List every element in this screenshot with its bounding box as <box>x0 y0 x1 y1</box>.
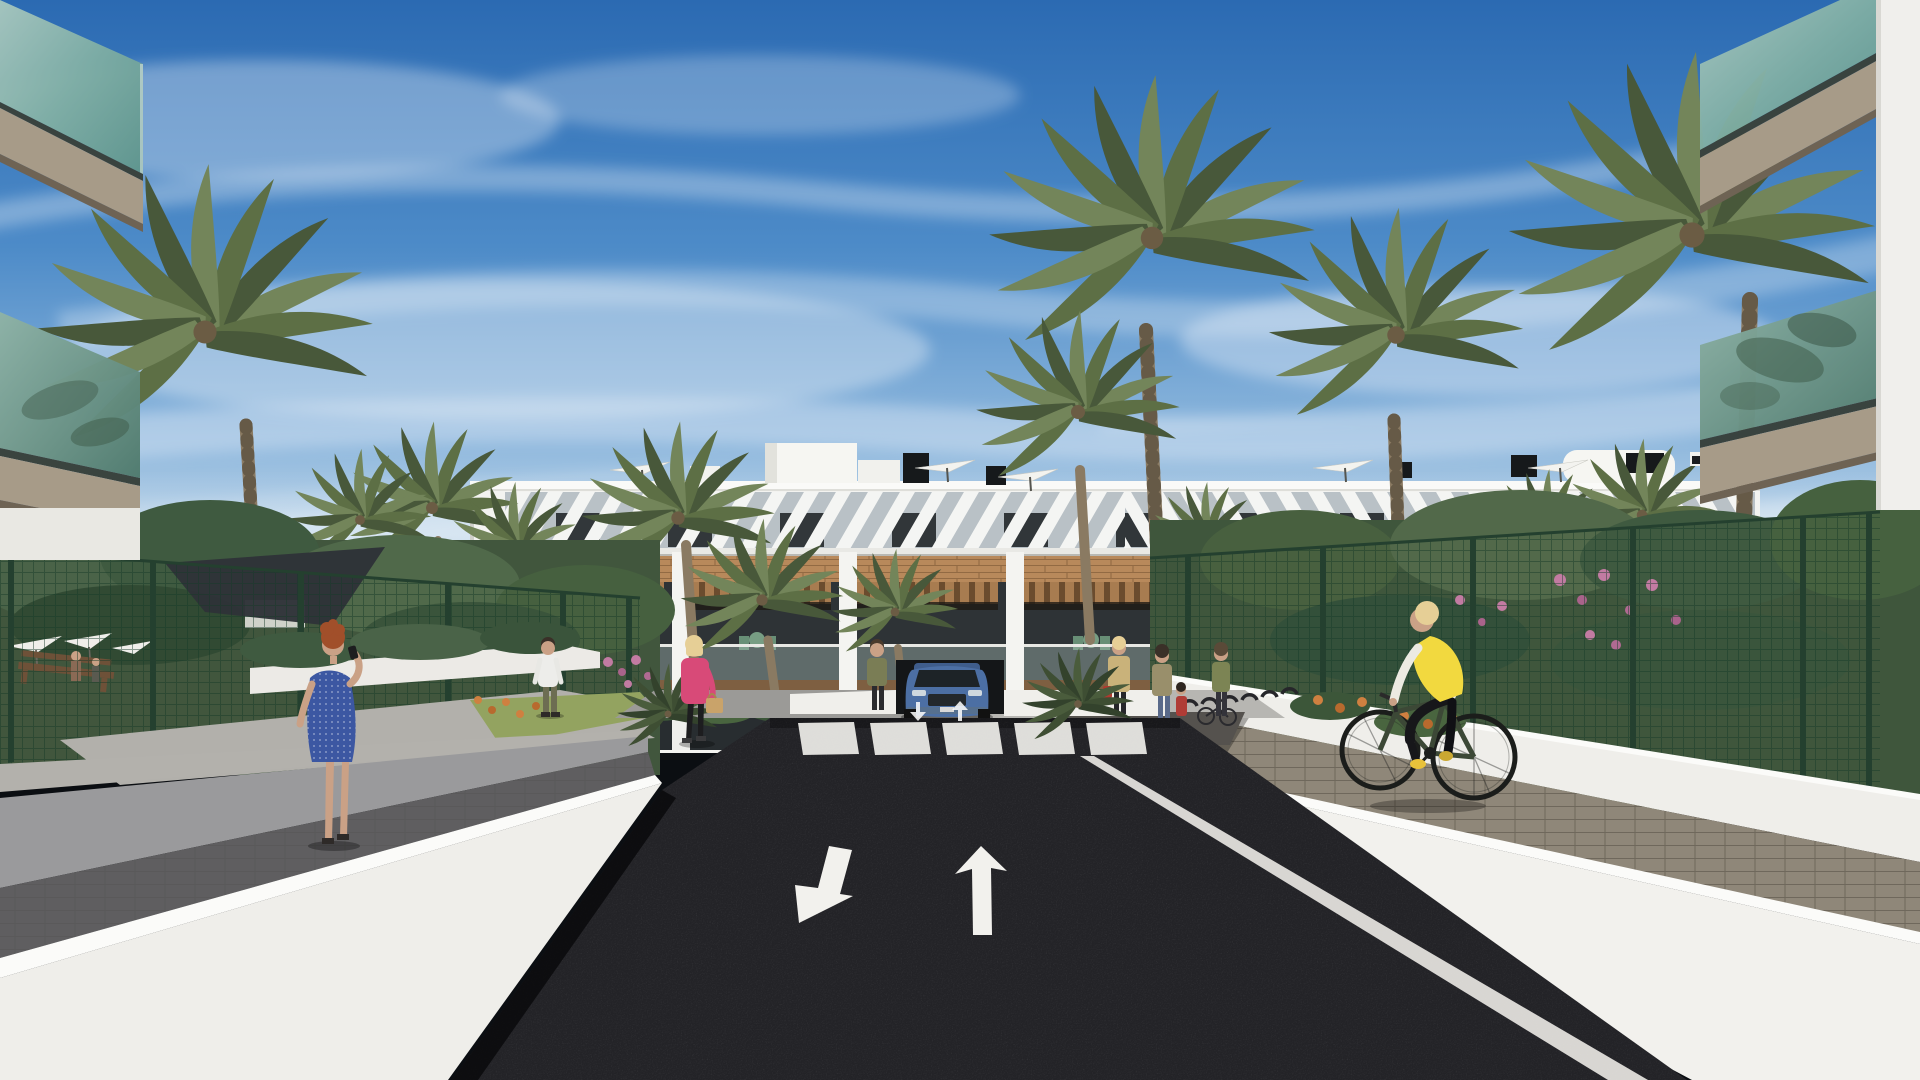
handbag <box>706 698 723 713</box>
corner-column <box>1876 0 1920 510</box>
crosswalk <box>798 722 1147 755</box>
architectural-render <box>0 0 1920 1080</box>
